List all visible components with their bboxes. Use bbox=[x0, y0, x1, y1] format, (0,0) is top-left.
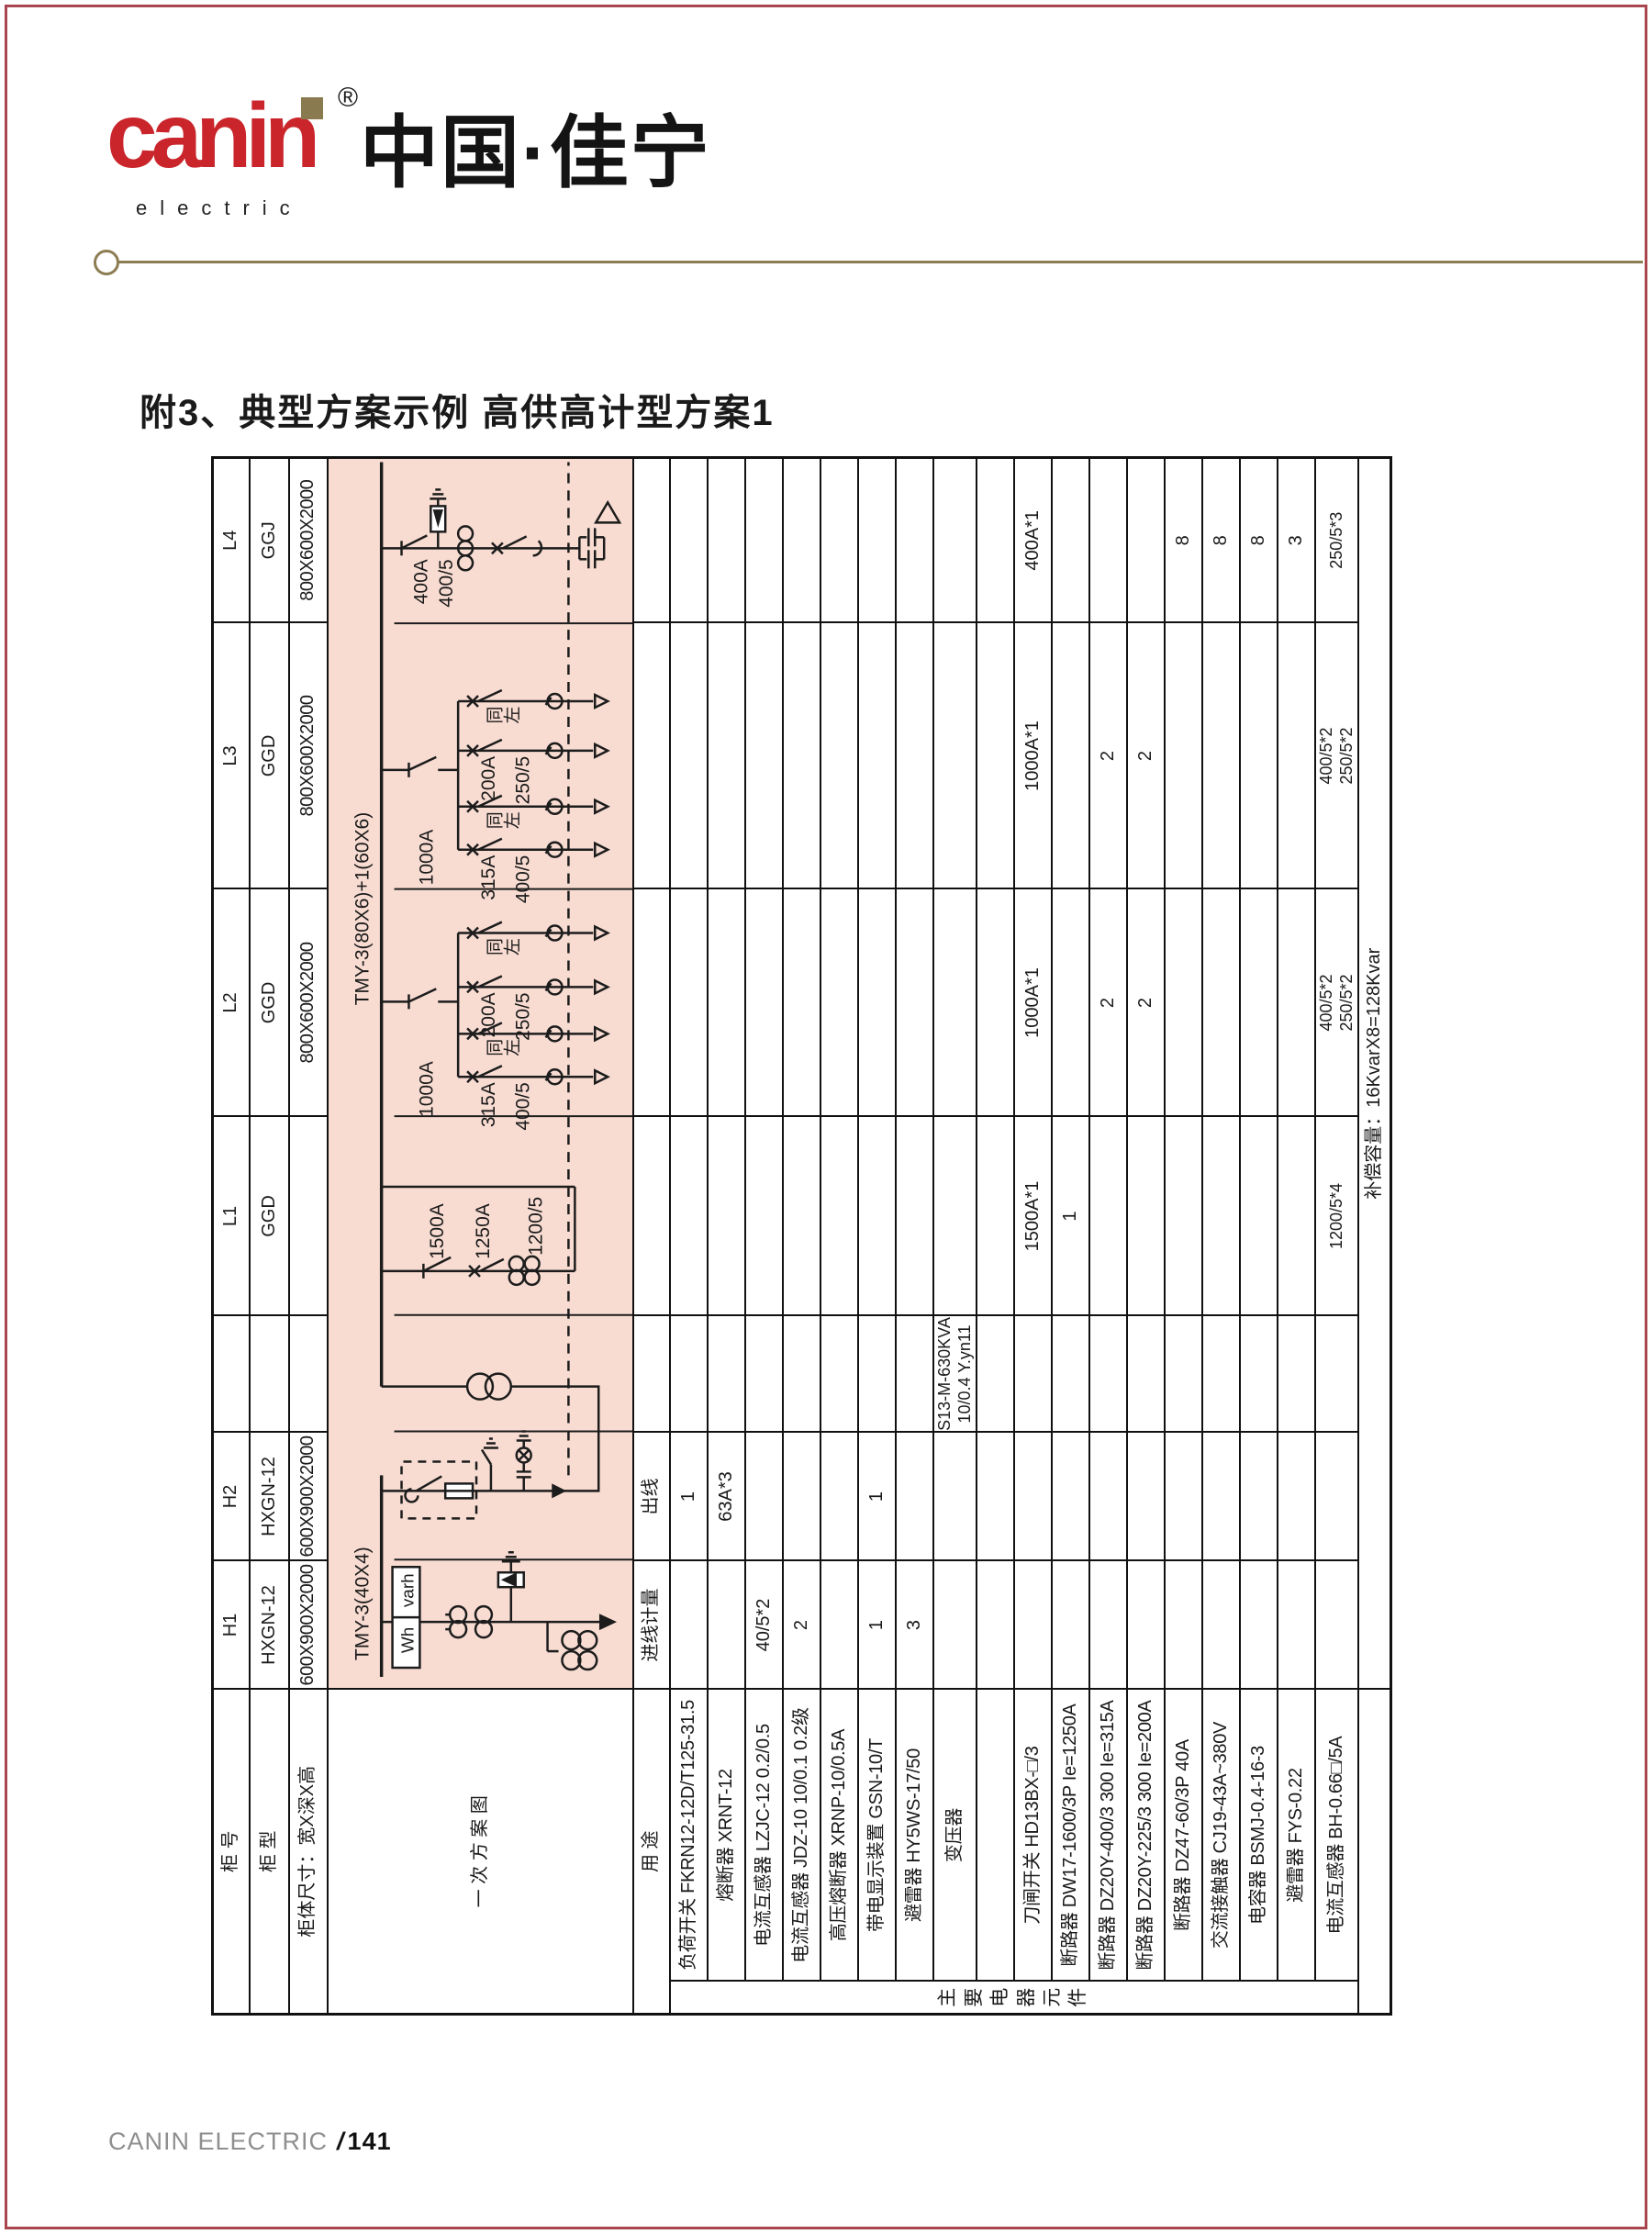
cell-type-l1: GGD bbox=[250, 1117, 289, 1316]
brand-name-chinese: 中国·佳宁 bbox=[360, 88, 711, 203]
table-row: 主要电器元件 负荷开关 FKRN12-12D/T125-31.5 1 bbox=[670, 458, 708, 2015]
component-qty: 250/5*3 bbox=[1315, 458, 1358, 623]
cell-cabinet-no-l4: L4 bbox=[213, 458, 250, 623]
component-name: 电容器 BSMJ-0.4-16-3 bbox=[1240, 1690, 1278, 1982]
component-qty bbox=[783, 1117, 820, 1316]
component-qty: 8 bbox=[1240, 458, 1278, 623]
component-qty: 1 bbox=[858, 1561, 896, 1690]
table-row: 变压器 S13-M-630KVA 10/0.4 Y.yn11 bbox=[933, 458, 977, 2015]
cell-cabinet-no-l2: L2 bbox=[213, 889, 250, 1117]
footer-brand: CANIN ELECTRIC bbox=[108, 2128, 328, 2155]
component-qty: 3 bbox=[896, 1561, 933, 1690]
row-label-cabinet-size: 柜体尺寸：宽X深X高 bbox=[289, 1690, 328, 2015]
component-qty bbox=[1052, 889, 1089, 1117]
table-row: 断路器 DZ20Y-400/3 300 Ie=315A 2 2 bbox=[1089, 458, 1127, 2015]
component-qty bbox=[1278, 1561, 1315, 1690]
cell-size-l3: 800X600X2000 bbox=[289, 623, 328, 889]
component-qty bbox=[1089, 1433, 1127, 1561]
component-qty: 400A*1 bbox=[1014, 458, 1052, 623]
cell-usage-l1 bbox=[633, 1117, 670, 1316]
table-row: 断路器 DW17-1600/3P Ie=1250A 1 bbox=[1052, 458, 1089, 2015]
cell-size-xfmr bbox=[289, 1316, 328, 1433]
component-qty bbox=[858, 1117, 896, 1316]
row-group-label-main-components: 主要电器元件 bbox=[670, 1982, 1358, 2015]
row-label-cabinet-no: 柜 号 bbox=[213, 1690, 250, 2015]
component-name: 变压器 bbox=[933, 1690, 977, 1982]
component-qty bbox=[977, 1117, 1014, 1316]
transformer-symbol bbox=[381, 1374, 510, 1400]
component-qty bbox=[1202, 1316, 1240, 1433]
component-qty: 3 bbox=[1278, 458, 1315, 623]
component-qty bbox=[708, 889, 745, 1117]
component-qty bbox=[858, 458, 896, 623]
cell-size-h1: 600X900X2000 bbox=[289, 1561, 328, 1690]
component-name: 断路器 DZ20Y-225/3 300 Ie=200A bbox=[1127, 1690, 1165, 1982]
component-qty bbox=[1315, 1433, 1358, 1561]
table-row: 断路器 DZ47-60/3P 40A 8 bbox=[1165, 458, 1202, 2015]
l4-circuit bbox=[381, 490, 619, 571]
component-qty: 1500A*1 bbox=[1014, 1117, 1052, 1316]
component-qty bbox=[1278, 1316, 1315, 1433]
header-divider-rule bbox=[117, 261, 1643, 263]
component-qty bbox=[1202, 1433, 1240, 1561]
component-qty bbox=[745, 1433, 783, 1561]
component-qty bbox=[977, 889, 1014, 1117]
single-line-diagram-cell: TMY-3(40X4) TMY-3(80X6)+1(60X6) Wh varh … bbox=[328, 458, 633, 1690]
component-qty bbox=[1315, 1561, 1358, 1690]
component-qty: 400/5*2 250/5*2 bbox=[1315, 889, 1358, 1117]
cell-cabinet-no-l1: L1 bbox=[213, 1117, 250, 1316]
component-qty bbox=[896, 1433, 933, 1561]
transformer-spec: S13-M-630KVA 10/0.4 Y.yn11 bbox=[933, 1316, 977, 1433]
component-qty bbox=[1315, 1316, 1358, 1433]
cell-usage-xfmr bbox=[633, 1316, 670, 1433]
footer-separator: / bbox=[337, 2128, 344, 2155]
l3-b3-ct-label: 250/5 bbox=[512, 756, 533, 804]
scheme-spec-table: 柜 号 H1 H2 L1 L2 L3 L4 柜 型 HXGN-12 HXGN-1… bbox=[211, 456, 1392, 2016]
component-qty bbox=[820, 1316, 858, 1433]
table-row: 柜体尺寸：宽X深X高 600X900X2000 600X900X2000 800… bbox=[289, 458, 328, 2015]
table-row: 熔断器 XRNT-12 63A*3 bbox=[708, 458, 745, 2015]
logo-subtitle: electric bbox=[136, 196, 303, 220]
component-qty bbox=[977, 1433, 1014, 1561]
table-row: 交流接触器 CJ19-43A~380V 8 bbox=[1202, 458, 1240, 2015]
l1-knife-label: 1500A bbox=[427, 1204, 448, 1260]
component-qty bbox=[820, 623, 858, 889]
component-qty bbox=[1052, 1561, 1089, 1690]
component-name: 断路器 DZ20Y-400/3 300 Ie=315A bbox=[1089, 1690, 1127, 1982]
component-qty bbox=[783, 889, 820, 1117]
l4-knife-label: 400A bbox=[410, 560, 431, 605]
component-qty: 8 bbox=[1202, 458, 1240, 623]
component-qty bbox=[896, 1316, 933, 1433]
single-line-diagram: TMY-3(40X4) TMY-3(80X6)+1(60X6) Wh varh … bbox=[329, 459, 632, 1689]
table-row: 柜 型 HXGN-12 HXGN-12 GGD GGD GGD GGJ bbox=[250, 458, 289, 2015]
component-qty bbox=[708, 458, 745, 623]
l2-b4-same-label: 同左 bbox=[485, 939, 519, 959]
component-qty bbox=[1202, 1561, 1240, 1690]
component-qty: 2 bbox=[1089, 889, 1127, 1117]
component-qty bbox=[977, 458, 1014, 623]
row-label-cabinet-type: 柜 型 bbox=[250, 1690, 289, 2015]
table-row: 电流互感器 JDZ-10 10/0.1 0.2级 2 bbox=[783, 458, 820, 2015]
component-qty bbox=[670, 889, 708, 1117]
l3-b1-ct-label: 400/5 bbox=[512, 855, 533, 903]
component-qty bbox=[1278, 1117, 1315, 1316]
component-qty bbox=[977, 1561, 1014, 1690]
component-qty bbox=[1278, 889, 1315, 1117]
component-qty bbox=[1165, 623, 1202, 889]
component-qty bbox=[783, 623, 820, 889]
footer-page-number: 141 bbox=[348, 2128, 392, 2155]
component-qty bbox=[1240, 1433, 1278, 1561]
l3-knife-label: 1000A bbox=[416, 830, 437, 886]
component-qty bbox=[858, 889, 896, 1117]
l1-breaker-label: 1250A bbox=[472, 1204, 493, 1260]
component-qty bbox=[783, 1316, 820, 1433]
component-qty bbox=[1089, 1316, 1127, 1433]
note-row-label bbox=[1358, 1690, 1391, 2015]
component-qty bbox=[1240, 1561, 1278, 1690]
component-qty bbox=[1278, 623, 1315, 889]
component-qty bbox=[933, 1433, 977, 1561]
l2-knife-label: 1000A bbox=[416, 1062, 437, 1118]
component-qty bbox=[1014, 1433, 1052, 1561]
l3-b4-same-label: 同左 bbox=[485, 707, 519, 727]
component-name bbox=[977, 1690, 1014, 1982]
component-qty bbox=[1202, 1117, 1240, 1316]
cell-type-l3: GGD bbox=[250, 623, 289, 889]
component-qty bbox=[1165, 889, 1202, 1117]
component-qty: 2 bbox=[783, 1561, 820, 1690]
component-qty bbox=[1052, 623, 1089, 889]
component-qty bbox=[745, 1316, 783, 1433]
component-name: 断路器 DW17-1600/3P Ie=1250A bbox=[1052, 1690, 1089, 1982]
component-qty bbox=[1127, 1316, 1165, 1433]
cell-type-xfmr bbox=[250, 1316, 289, 1433]
component-qty: 8 bbox=[1165, 458, 1202, 623]
component-qty bbox=[670, 1561, 708, 1690]
component-name: 交流接触器 CJ19-43A~380V bbox=[1202, 1690, 1240, 1982]
component-name: 刀闸开关 HD13BX-□/3 bbox=[1014, 1690, 1052, 1982]
component-qty bbox=[1014, 1316, 1052, 1433]
meter-wh-label: Wh bbox=[398, 1627, 418, 1653]
table-row: 补偿容量：16KvarX8=128Kvar bbox=[1358, 458, 1391, 2015]
cell-size-l2: 800X600X2000 bbox=[289, 889, 328, 1117]
logo-accent-square-icon bbox=[301, 97, 323, 119]
component-qty bbox=[1165, 1561, 1202, 1690]
component-qty bbox=[1165, 1117, 1202, 1316]
component-qty bbox=[933, 623, 977, 889]
component-qty bbox=[708, 1316, 745, 1433]
component-qty bbox=[1127, 1117, 1165, 1316]
component-qty bbox=[745, 458, 783, 623]
compensation-capacity-note: 补偿容量：16KvarX8=128Kvar bbox=[1358, 458, 1391, 1690]
l2-b3-ct-label: 250/5 bbox=[512, 993, 533, 1041]
component-qty bbox=[1014, 1561, 1052, 1690]
table-row: 柜 号 H1 H2 L1 L2 L3 L4 bbox=[213, 458, 250, 2015]
component-name: 电流互感器 JDZ-10 10/0.1 0.2级 bbox=[783, 1690, 820, 1982]
component-qty bbox=[670, 623, 708, 889]
incoming-arrow-icon bbox=[600, 1616, 614, 1629]
component-qty bbox=[783, 458, 820, 623]
cell-size-l4: 800X600X2000 bbox=[289, 458, 328, 623]
component-qty bbox=[1052, 1433, 1089, 1561]
cell-usage-l2 bbox=[633, 889, 670, 1117]
cell-cabinet-no-xfmr bbox=[213, 1316, 250, 1433]
component-qty bbox=[745, 623, 783, 889]
component-qty bbox=[896, 1117, 933, 1316]
component-qty: 400/5*2 250/5*2 bbox=[1315, 623, 1358, 889]
component-qty bbox=[933, 889, 977, 1117]
component-qty bbox=[858, 1316, 896, 1433]
component-name: 断路器 DZ47-60/3P 40A bbox=[1165, 1690, 1202, 1982]
l2-b2-same-label: 同左 bbox=[485, 1040, 519, 1060]
table-row: 刀闸开关 HD13BX-□/3 1500A*1 1000A*1 1000A*1 … bbox=[1014, 458, 1052, 2015]
component-qty bbox=[745, 1117, 783, 1316]
component-qty bbox=[1202, 623, 1240, 889]
component-qty bbox=[820, 1117, 858, 1316]
component-qty: 1200/5*4 bbox=[1315, 1117, 1358, 1316]
component-qty bbox=[1089, 1561, 1127, 1690]
component-qty bbox=[708, 1117, 745, 1316]
component-qty bbox=[670, 1117, 708, 1316]
rule-end-circle-icon bbox=[94, 250, 119, 275]
cell-type-h1: HXGN-12 bbox=[250, 1561, 289, 1690]
component-qty: 1 bbox=[1052, 1117, 1089, 1316]
component-qty bbox=[1240, 1117, 1278, 1316]
meter-varh-label: varh bbox=[398, 1574, 418, 1608]
table-row: 断路器 DZ20Y-225/3 300 Ie=200A 2 2 bbox=[1127, 458, 1165, 2015]
cell-size-h2: 600X900X2000 bbox=[289, 1433, 328, 1561]
component-qty bbox=[1052, 458, 1089, 623]
component-qty bbox=[1089, 1117, 1127, 1316]
h2-circuit bbox=[381, 1387, 598, 1519]
component-name: 带电显示装置 GSN-10/T bbox=[858, 1690, 896, 1982]
cell-type-l2: GGD bbox=[250, 889, 289, 1117]
component-qty bbox=[670, 458, 708, 623]
table-row bbox=[977, 458, 1014, 2015]
component-qty bbox=[933, 458, 977, 623]
component-qty bbox=[858, 623, 896, 889]
component-qty bbox=[670, 1316, 708, 1433]
component-qty bbox=[1278, 1433, 1315, 1561]
component-qty bbox=[977, 1316, 1014, 1433]
cell-type-l4: GGJ bbox=[250, 458, 289, 623]
l2-b1-ct-label: 400/5 bbox=[512, 1083, 533, 1131]
component-qty bbox=[896, 623, 933, 889]
l2-b3-breaker-label: 200A bbox=[477, 993, 498, 1038]
component-name: 电流互感器 BH-0.66□/5A bbox=[1315, 1690, 1358, 1982]
component-qty: 1000A*1 bbox=[1014, 889, 1052, 1117]
component-qty bbox=[1240, 623, 1278, 889]
component-name: 高压熔断器 XRNP-10/0.5A bbox=[820, 1690, 858, 1982]
component-qty: 40/5*2 bbox=[745, 1561, 783, 1690]
cell-cabinet-no-h1: H1 bbox=[213, 1561, 250, 1690]
component-qty bbox=[820, 889, 858, 1117]
l3-b2-same-label: 同左 bbox=[485, 812, 519, 832]
row-label-scheme-diagram: 一 次 方 案 图 bbox=[328, 1690, 633, 2015]
component-qty bbox=[1127, 1433, 1165, 1561]
component-qty bbox=[1127, 458, 1165, 623]
scheme-spec-table-rotated: 柜 号 H1 H2 L1 L2 L3 L4 柜 型 HXGN-12 HXGN-1… bbox=[211, 459, 1391, 2016]
component-name: 熔断器 XRNT-12 bbox=[708, 1690, 745, 1982]
table-row: 电容器 BSMJ-0.4-16-3 8 bbox=[1240, 458, 1278, 2015]
cell-usage-l3 bbox=[633, 623, 670, 889]
table-row: 避雷器 HY5WS-17/50 3 bbox=[896, 458, 933, 2015]
cell-usage-l4 bbox=[633, 458, 670, 623]
table-row: 电流互感器 BH-0.66□/5A 1200/5*4 400/5*2 250/5… bbox=[1315, 458, 1358, 2015]
component-name: 避雷器 FYS-0.22 bbox=[1278, 1690, 1315, 1982]
table-row: 用 途 进线计量 出线 bbox=[633, 458, 670, 2015]
l3-b1-breaker-label: 315A bbox=[477, 855, 498, 900]
hv-busbar-label: TMY-3(40X4) bbox=[352, 1547, 373, 1661]
registered-trademark-icon: ® bbox=[338, 83, 358, 114]
l2-b1-breaker-label: 315A bbox=[477, 1083, 498, 1128]
component-qty bbox=[783, 1433, 820, 1561]
component-qty: 2 bbox=[1127, 889, 1165, 1117]
table-row: 避雷器 FYS-0.22 3 bbox=[1278, 458, 1315, 2015]
component-qty bbox=[1127, 1561, 1165, 1690]
component-qty bbox=[820, 458, 858, 623]
component-qty bbox=[1165, 1433, 1202, 1561]
component-qty bbox=[1202, 889, 1240, 1117]
component-qty bbox=[1240, 889, 1278, 1117]
component-qty bbox=[708, 623, 745, 889]
component-qty bbox=[1240, 1316, 1278, 1433]
component-name: 避雷器 HY5WS-17/50 bbox=[896, 1690, 933, 1982]
logo-wordmark: canin bbox=[106, 90, 314, 182]
component-qty bbox=[933, 1117, 977, 1316]
component-qty bbox=[896, 458, 933, 623]
row-label-usage: 用 途 bbox=[633, 1690, 670, 2015]
cell-type-h2: HXGN-12 bbox=[250, 1433, 289, 1561]
page-footer: CANIN ELECTRIC/141 bbox=[108, 2128, 392, 2156]
component-qty: 1 bbox=[858, 1433, 896, 1561]
cell-usage-h1: 进线计量 bbox=[633, 1561, 670, 1690]
component-name: 负荷开关 FKRN12-12D/T125-31.5 bbox=[670, 1690, 708, 1982]
component-qty: 2 bbox=[1127, 623, 1165, 889]
l1-ct-label: 1200/5 bbox=[525, 1197, 546, 1256]
table-row: 带电显示装置 GSN-10/T 1 1 bbox=[858, 458, 896, 2015]
component-qty bbox=[1052, 1316, 1089, 1433]
component-qty bbox=[933, 1561, 977, 1690]
component-qty bbox=[708, 1561, 745, 1690]
cell-cabinet-no-l3: L3 bbox=[213, 623, 250, 889]
cell-usage-h2: 出线 bbox=[633, 1433, 670, 1561]
page-title: 附3、典型方案示例 高供高计型方案1 bbox=[140, 383, 775, 436]
component-qty: 2 bbox=[1089, 623, 1127, 889]
component-qty: 1 bbox=[670, 1433, 708, 1561]
table-row: 一 次 方 案 图 bbox=[328, 458, 633, 2015]
l3-b3-breaker-label: 200A bbox=[477, 756, 498, 801]
table-row: 电流互感器 LZJC-12 0.2/0.5 40/5*2 bbox=[745, 458, 783, 2015]
l4-ct-label: 400/5 bbox=[436, 560, 457, 608]
component-qty: 63A*3 bbox=[708, 1433, 745, 1561]
component-name: 电流互感器 LZJC-12 0.2/0.5 bbox=[745, 1690, 783, 1982]
component-qty bbox=[820, 1433, 858, 1561]
component-qty bbox=[977, 623, 1014, 889]
component-qty bbox=[896, 889, 933, 1117]
component-qty bbox=[1089, 458, 1127, 623]
cell-size-l1 bbox=[289, 1117, 328, 1316]
table-row: 高压熔断器 XRNP-10/0.5A bbox=[820, 458, 858, 2015]
lv-busbar-label: TMY-3(80X6)+1(60X6) bbox=[352, 812, 373, 1006]
cell-cabinet-no-h2: H2 bbox=[213, 1433, 250, 1561]
component-qty bbox=[745, 889, 783, 1117]
component-qty bbox=[820, 1561, 858, 1690]
component-qty: 1000A*1 bbox=[1014, 623, 1052, 889]
component-qty bbox=[1165, 1316, 1202, 1433]
